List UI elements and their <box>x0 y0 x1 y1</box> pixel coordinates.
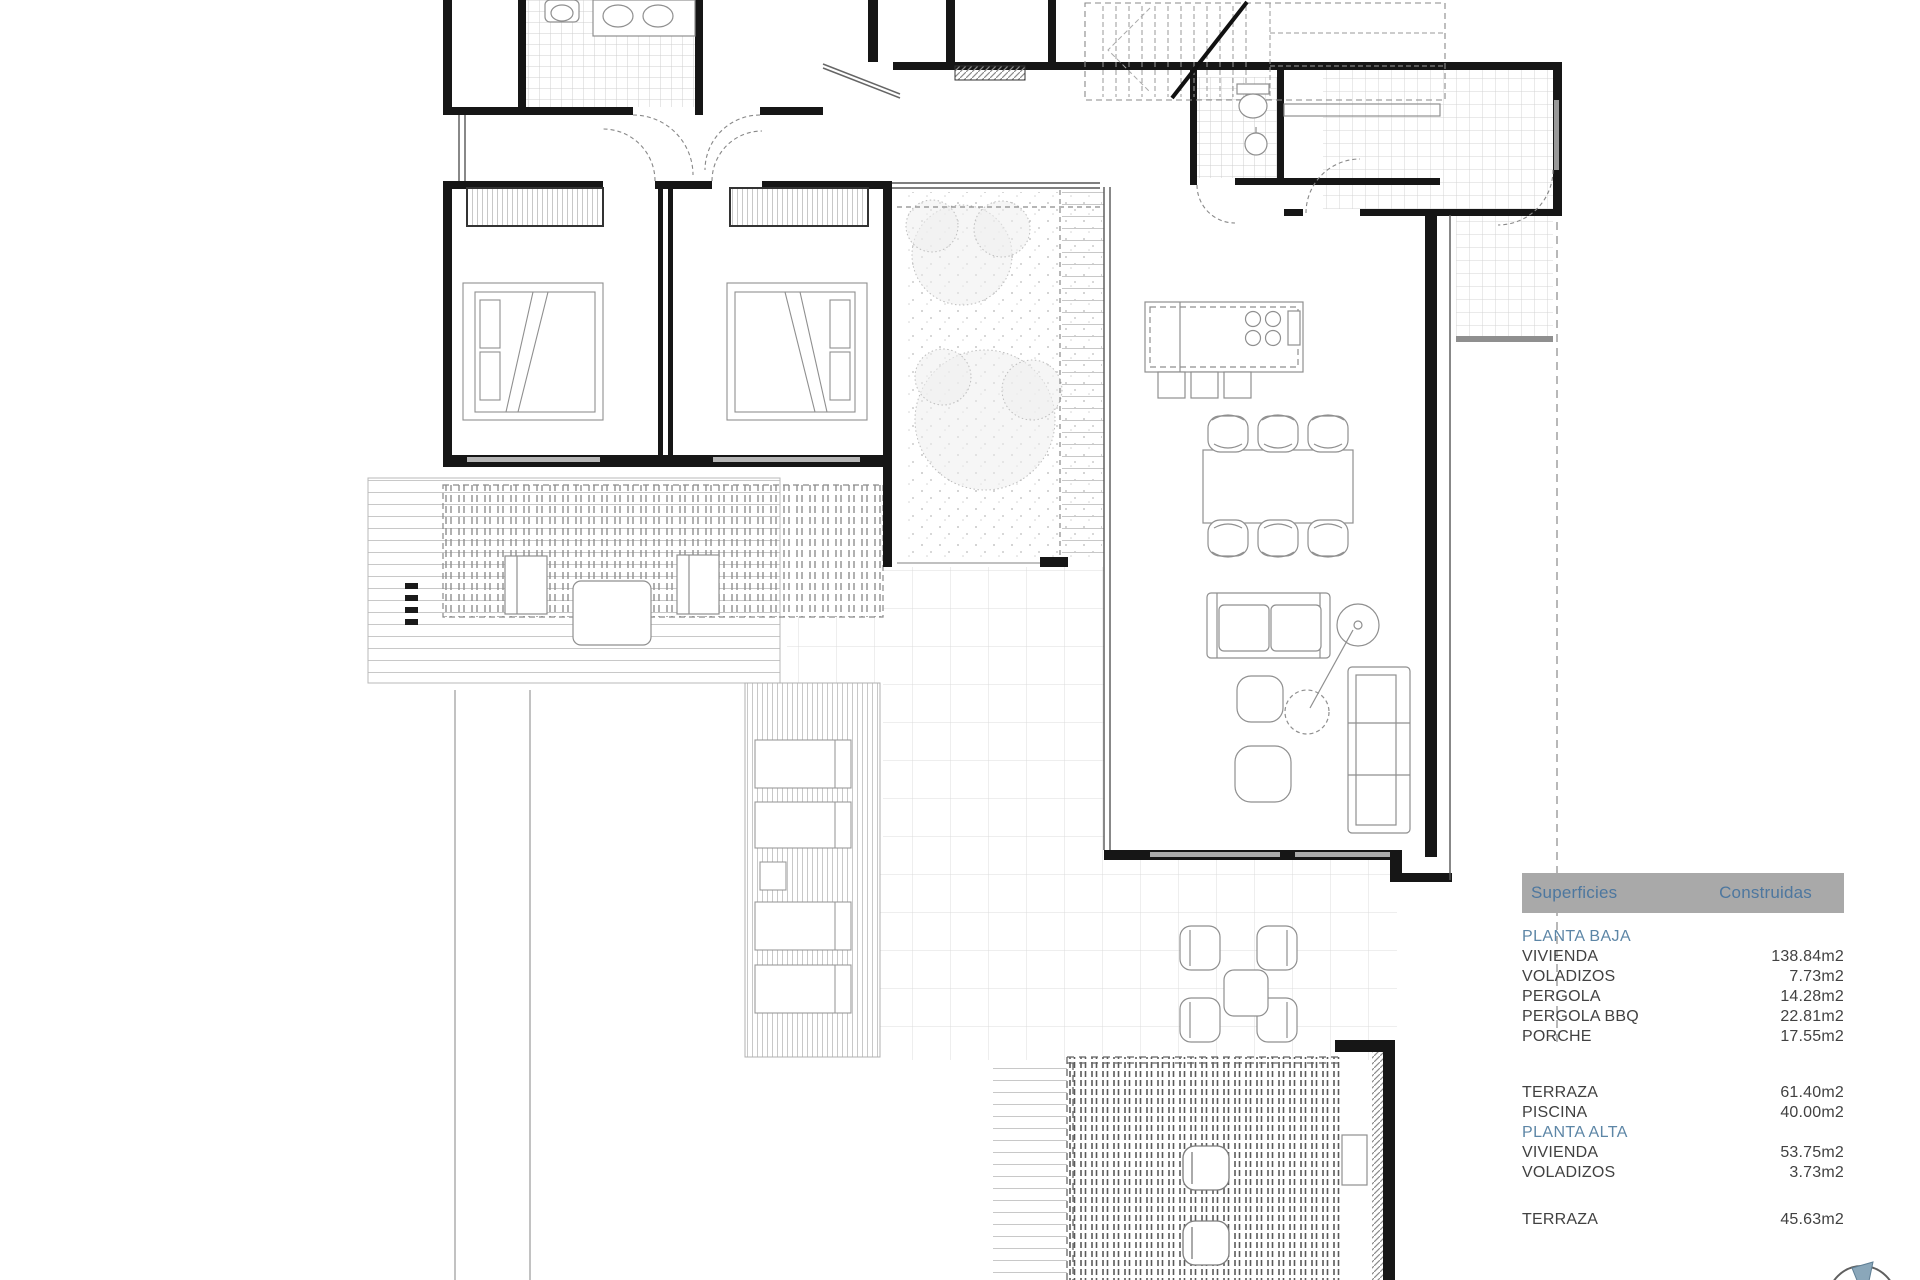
section-planta-alta: PLANTA ALTA <box>1522 1123 1844 1143</box>
legend-row: PISCINA40.00m2 <box>1522 1103 1844 1123</box>
legend-row: VOLADIZOS7.73m2 <box>1522 967 1844 987</box>
legend-row: VOLADIZOS3.73m2 <box>1522 1163 1844 1183</box>
surfaces-legend: Superficies Construidas PLANTA BAJA VIVI… <box>1522 873 1844 1230</box>
legend-body: PLANTA BAJA VIVIENDA138.84m2 VOLADIZOS7.… <box>1522 927 1844 1230</box>
floorplan-page: { "legend": { "header_left": "Superficie… <box>0 0 1920 1280</box>
bbq-pergola <box>745 683 880 1057</box>
compass-icon <box>1828 1262 1896 1280</box>
legend-header-right: Construidas <box>1719 883 1812 903</box>
entry-door-leaf <box>823 64 900 98</box>
pool <box>1067 1052 1383 1280</box>
wardrobes <box>467 188 868 226</box>
entry-hatched-wall <box>955 66 1025 80</box>
legend-header: Superficies Construidas <box>1522 873 1844 913</box>
legend-row: TERRAZA61.40m2 <box>1522 1083 1844 1103</box>
section-planta-baja: PLANTA BAJA <box>1522 927 1844 947</box>
legend-row: PERGOLA14.28m2 <box>1522 987 1844 1007</box>
legend-row: TERRAZA45.63m2 <box>1522 1210 1844 1230</box>
legend-row: VIVIENDA53.75m2 <box>1522 1143 1844 1163</box>
courtyard-garden <box>897 190 1104 560</box>
legend-header-left: Superficies <box>1531 883 1617 903</box>
bedroom-beds <box>463 283 867 420</box>
legend-row: VIVIENDA138.84m2 <box>1522 947 1844 967</box>
legend-row: PORCHE17.55m2 <box>1522 1027 1844 1047</box>
legend-row: PERGOLA BBQ22.81m2 <box>1522 1007 1844 1027</box>
living-furniture <box>1207 593 1410 833</box>
dining-set <box>1203 415 1353 557</box>
